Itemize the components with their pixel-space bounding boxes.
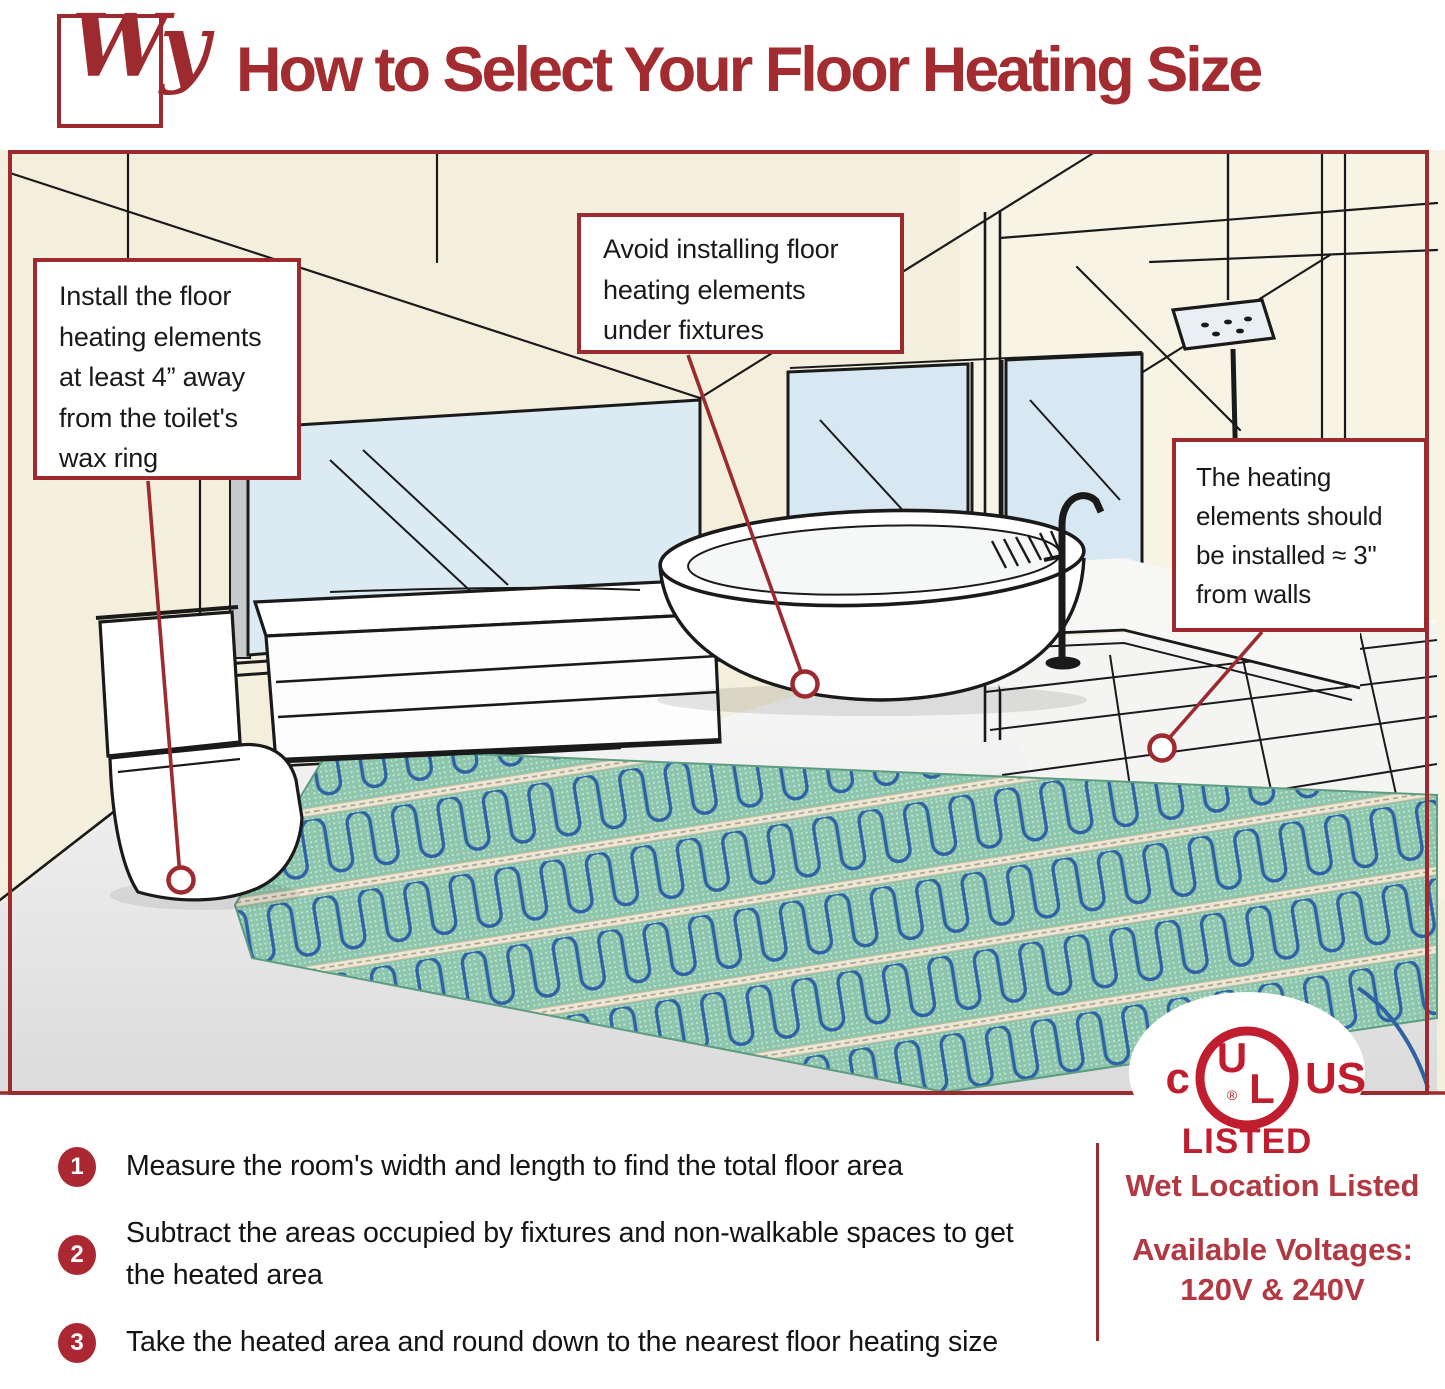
ul-certification-mark: U L ® c US LISTED — [1129, 992, 1366, 1161]
instruction-steps: 1 Measure the room's width and length to… — [58, 1146, 1068, 1389]
ul-reg: ® — [1227, 1087, 1238, 1103]
callout-distance-from-walls: The heating elements should be installed… — [1172, 438, 1428, 632]
step-row-2: 2 Subtract the areas occupied by fixture… — [58, 1213, 1068, 1296]
step-3-text: Take the heated area and round down to t… — [126, 1322, 998, 1363]
logo-script-text: Wy — [71, 4, 204, 90]
marker-mat-wall — [1150, 736, 1175, 761]
step-2-text: Subtract the areas occupied by fixtures … — [126, 1213, 1056, 1296]
page-title: How to Select Your Floor Heating Size — [236, 34, 1366, 106]
ul-l: L — [1249, 1065, 1275, 1112]
callout-toilet-wax-ring: Install the floor heating elements at le… — [33, 258, 301, 480]
marker-tub — [793, 672, 818, 697]
step-2-badge: 2 — [58, 1235, 96, 1275]
step-row-1: 1 Measure the room's width and length to… — [58, 1146, 1068, 1187]
wet-location-listed-text: Wet Location Listed — [1100, 1168, 1445, 1204]
ul-u: U — [1217, 1034, 1247, 1081]
bench-illustration — [255, 580, 720, 762]
step-row-3: 3 Take the heated area and round down to… — [58, 1322, 1068, 1363]
certification-notes: Wet Location Listed Available Voltages: … — [1100, 1168, 1445, 1308]
ul-us: US — [1305, 1054, 1366, 1103]
callout-avoid-fixtures: Avoid installing floor heating elements … — [577, 213, 904, 354]
ul-listed: LISTED — [1182, 1122, 1312, 1161]
step-1-text: Measure the room's width and length to f… — [126, 1146, 903, 1187]
footer-vertical-divider — [1096, 1143, 1099, 1341]
warmlyyours-logo: Wy — [57, 14, 163, 128]
step-3-badge: 3 — [58, 1323, 96, 1363]
marker-toilet — [169, 868, 194, 893]
step-1-badge: 1 — [58, 1147, 96, 1187]
ul-c: c — [1166, 1054, 1190, 1103]
voltages-value: 120V & 240V — [1100, 1272, 1445, 1308]
available-voltages-label: Available Voltages: — [1100, 1232, 1445, 1268]
